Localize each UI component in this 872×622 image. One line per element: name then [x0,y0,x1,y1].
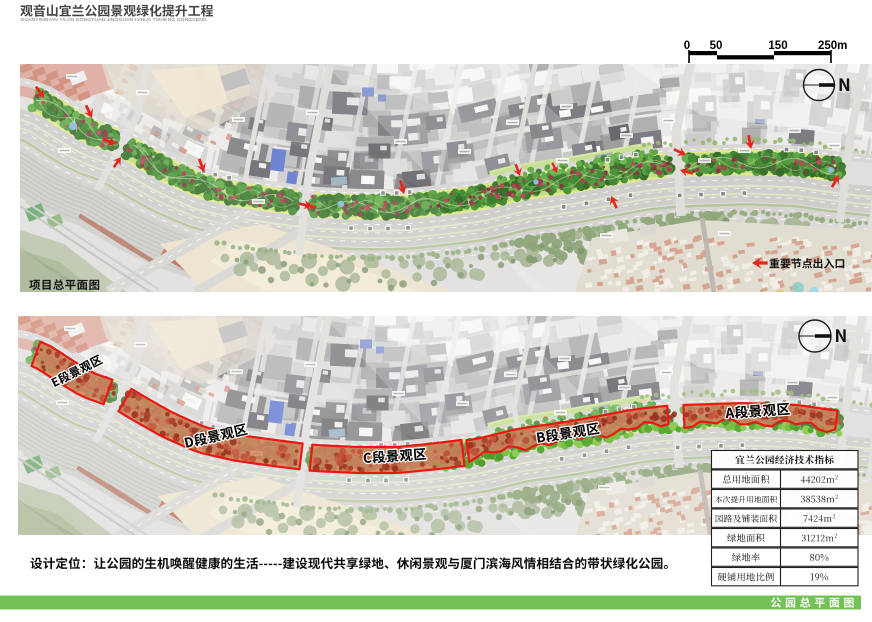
svg-text:250m: 250m [818,40,847,52]
svg-text:GUANYINSHAN YILAN GONGYUAN JI: GUANYINSHAN YILAN GONGYUAN JINGGUAN LVHU… [21,17,207,23]
svg-text:50: 50 [710,40,723,52]
svg-text:0: 0 [684,40,690,52]
svg-text:150: 150 [768,40,787,52]
